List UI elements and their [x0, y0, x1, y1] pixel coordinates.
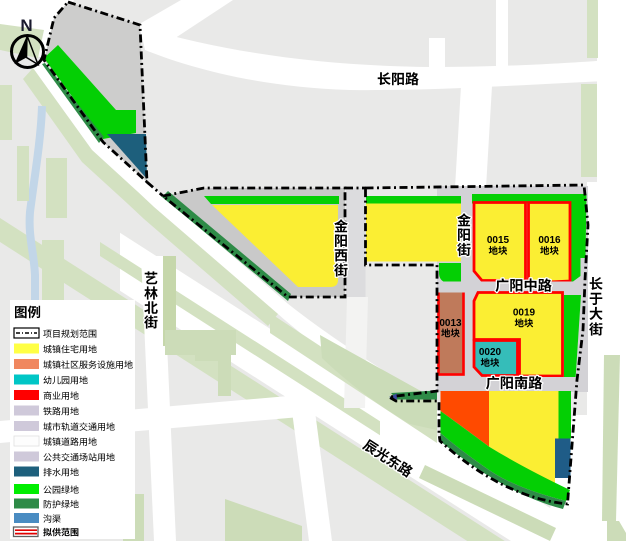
svg-text:0016: 0016 [538, 235, 561, 246]
svg-text:0020: 0020 [479, 347, 502, 358]
svg-text:0013: 0013 [439, 318, 462, 329]
svg-text:N: N [20, 16, 32, 35]
svg-text:0015: 0015 [487, 235, 510, 246]
svg-text:0019: 0019 [513, 308, 536, 319]
